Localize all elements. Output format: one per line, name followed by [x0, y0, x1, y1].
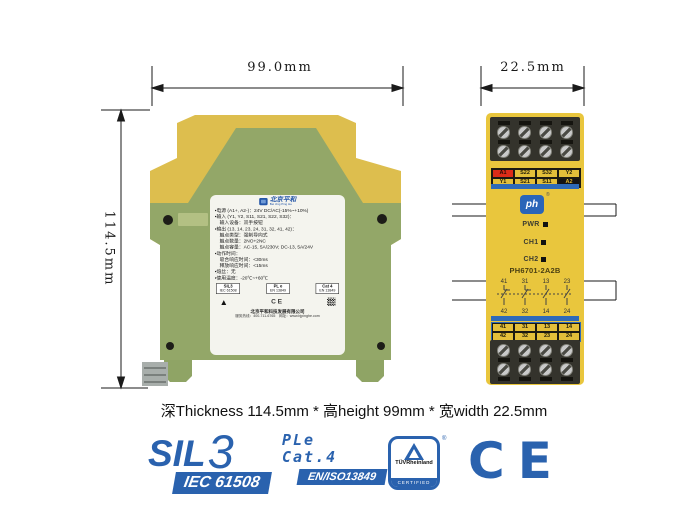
housing-screw [163, 215, 173, 225]
dim-arrow [573, 85, 584, 92]
label-cert-boxes: SIL3 IEC 61508 PL e EN 13849 Cat 4 EN 13… [211, 283, 344, 294]
terminal-screw [539, 363, 552, 376]
wire-slot-row [493, 121, 577, 125]
ce-mark: CE [468, 432, 565, 490]
cert-box-pl: PL e EN 13849 [266, 283, 289, 294]
contact-pin-label: 41 [501, 279, 508, 285]
tuv-triangle-icon [404, 443, 424, 460]
terminal-screw [497, 344, 510, 357]
terminal-screw [518, 363, 531, 376]
spec-lines: ▪电源 (A1+, A2-)：24V DC/AC(-15%~+10%) ▪输入 … [211, 208, 344, 282]
terminal-screw [560, 145, 573, 158]
ph-brand-logo: ph [520, 195, 544, 214]
housing-foot [164, 360, 192, 382]
wire-slot [519, 140, 531, 144]
side-view-device: 北京平和 Bei Jing Ping He ▪电源 (A1+, A2-)：24V… [140, 96, 408, 396]
wire-slot [561, 358, 573, 362]
terminal-screw [560, 363, 573, 376]
led-label: PWR [522, 221, 539, 228]
contact-pin-label: 13 [543, 279, 550, 285]
wire-slot [561, 140, 573, 144]
cert-box-cat: Cat 4 EN 13849 [316, 283, 339, 294]
cert-box-standard: EN 13849 [319, 289, 335, 293]
top-terminal-block [490, 117, 580, 161]
wire-slot-row [493, 377, 577, 381]
en-iso-13849-band: EN/ISO13849 [297, 469, 388, 485]
wire-slot-row [493, 358, 577, 362]
side-product-label: 北京平和 Bei Jing Ping He ▪电源 (A1+, A2-)：24V… [210, 195, 345, 355]
terminal-screw-row [493, 363, 577, 376]
wire-slot [498, 358, 510, 362]
housing-screw [166, 342, 174, 350]
dim-arrow [392, 85, 403, 92]
qr-code-icon [327, 298, 335, 306]
terminal-label: Y2 [558, 169, 580, 178]
terminal-screw [539, 126, 552, 139]
bottom-terminal-labels: 41 31 13 14 42 32 23 24 [491, 322, 581, 342]
brand-logo-icon [259, 198, 267, 205]
wire-slot-row [493, 140, 577, 144]
terminal-screw [518, 145, 531, 158]
depth-dimension-label: 22.5mm [478, 60, 588, 75]
tuv-registered-mark: ® [442, 436, 446, 442]
terminal-label: A1 [492, 169, 514, 178]
contact-pin-label: 14 [543, 309, 550, 314]
company-contact: 服务热线：400-711-6765 网址：www.bjpinghe.com [211, 314, 344, 319]
wire-slot [519, 121, 531, 125]
cert-box-sil: SIL3 IEC 61508 [216, 283, 240, 294]
terminal-screw-row [493, 145, 577, 158]
terminal-label: 13 [536, 323, 558, 332]
product-datasheet-image: 99.0mm 22.5mm 114.5mm [0, 0, 696, 514]
dim-arrow [152, 85, 163, 92]
cert-box-standard: EN 13849 [270, 289, 286, 293]
pl-level-text: PLe [282, 432, 386, 449]
sil-level: 3 [208, 434, 234, 471]
contact-pin-label: 32 [522, 309, 529, 314]
led-label: CH1 [524, 239, 539, 246]
terminal-screw [497, 126, 510, 139]
contact-pin-label: 31 [522, 279, 529, 285]
terminal-label: S22 [514, 169, 536, 178]
brand-name-pinyin: Bei Jing Ping He [270, 203, 296, 206]
led-row-ch1: CH1 [486, 239, 584, 246]
terminal-screw-row [493, 126, 577, 139]
iec-61508-band: IEC 61508 [172, 472, 271, 494]
dim-arrow [118, 377, 125, 388]
terminal-screw [539, 344, 552, 357]
wire-slot [519, 358, 531, 362]
label-cert-marks: ▲ CE [211, 296, 344, 307]
width-dimension-label: 99.0mm [210, 60, 350, 75]
category-text: Cat.4 [282, 449, 386, 466]
ple-cat4-certification-logo: PLe Cat.4 EN/ISO13849 [282, 432, 386, 485]
front-view-device: A1 S22 S32 Y2 Y1 S21 S11 A2 ph ® PWR CH1… [486, 113, 584, 385]
terminal-label: 41 [492, 323, 514, 332]
terminal-screw [539, 145, 552, 158]
housing-screw [377, 342, 385, 350]
led-indicator [543, 222, 548, 227]
contact-pin-label: 24 [564, 309, 571, 314]
dimensions-caption: 深Thickness 114.5mm * 高height 99mm * 宽wid… [12, 400, 696, 421]
wire-slot [498, 140, 510, 144]
terminal-label: 31 [514, 323, 536, 332]
terminal-screw [560, 344, 573, 357]
spec-line: ▪使用温度：-20℃~+60℃ [215, 275, 340, 281]
wire-slot [540, 377, 552, 381]
contact-pin-label: 23 [564, 279, 571, 285]
bottom-terminal-block [490, 340, 580, 384]
wire-slot [498, 377, 510, 381]
housing-foot [356, 360, 384, 382]
led-row-pwr: PWR [486, 221, 584, 228]
led-indicator [541, 257, 546, 262]
ce-mark-icon: CE [271, 298, 284, 305]
housing-screw [377, 214, 387, 224]
contact-diagram: 41 31 13 23 42 32 14 24 [491, 276, 579, 314]
wire-slot [561, 121, 573, 125]
wire-slot [540, 358, 552, 362]
terminal-screw [497, 363, 510, 376]
wire-slot [540, 121, 552, 125]
registered-mark: ® [546, 192, 550, 198]
wire-slot [498, 121, 510, 125]
wire-slot [540, 140, 552, 144]
terminal-screw [518, 126, 531, 139]
model-number: PH6701-2A2B [486, 266, 584, 275]
terminal-label: S32 [536, 169, 558, 178]
tuv-brand-text: TÜVRheinland [395, 460, 433, 468]
terminal-label: 14 [558, 323, 580, 332]
height-dimension-label: 114.5mm [102, 202, 117, 296]
terminal-screw [518, 344, 531, 357]
brand-row: 北京平和 Bei Jing Ping He [211, 197, 344, 207]
contact-pin-label: 42 [501, 309, 508, 314]
terminal-screw [497, 145, 510, 158]
led-label: CH2 [524, 256, 539, 263]
wire-slot [519, 377, 531, 381]
tuv-certified-band: CERTIFIED [391, 478, 437, 487]
housing-recess [178, 213, 208, 226]
dim-arrow [481, 85, 492, 92]
cert-box-standard: IEC 61508 [220, 289, 237, 293]
terminal-screw-row [493, 344, 577, 357]
sil3-certification-logo: SIL 3 IEC 61508 [148, 434, 270, 494]
wire-slot [561, 377, 573, 381]
blue-stripe [491, 316, 579, 321]
led-row-ch2: CH2 [486, 256, 584, 263]
tuv-mark-icon: ▲ [220, 298, 228, 306]
terminal-screw [560, 126, 573, 139]
blue-stripe [491, 184, 579, 189]
dim-arrow [118, 110, 125, 121]
led-indicator [541, 240, 546, 245]
sil-text: SIL [148, 437, 206, 470]
tuv-rheinland-logo: TÜVRheinland CERTIFIED [388, 436, 440, 490]
